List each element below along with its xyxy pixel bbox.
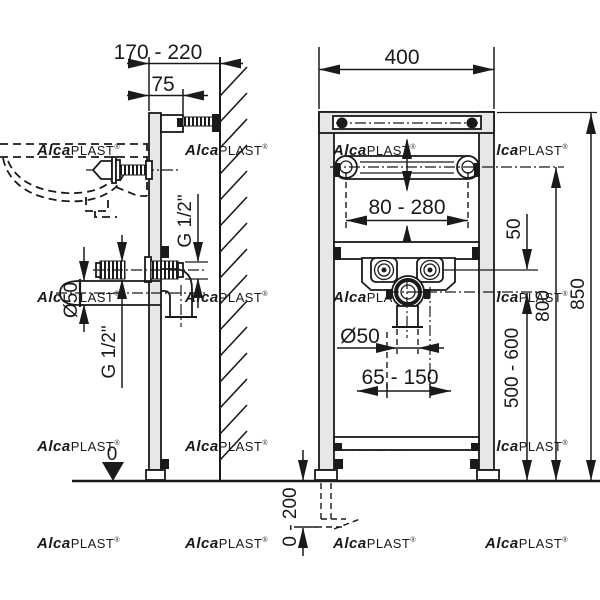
dim-fixing-bar-height-label: 800 (533, 290, 554, 322)
top-crossbar (319, 112, 494, 133)
dim-depth-range-label: 170 - 220 (114, 41, 203, 64)
installation-frame-drawing: AlcaPLAST®AlcaPLAST®AlcaPLAST®AlcaPLAST®… (0, 0, 600, 600)
pipe-clamp (161, 246, 169, 258)
dim-frame-height-label: 850 (568, 278, 589, 310)
brand-watermark: AlcaPLAST® (484, 535, 568, 552)
dim-supply-thread-upper-label: G 1/2" (175, 194, 196, 247)
brand-watermark: AlcaPLAST® (184, 142, 268, 159)
left-rail (319, 112, 334, 470)
dim-wall-offset-label: 75 (151, 73, 174, 96)
brand-watermark: AlcaPLAST® (36, 535, 120, 552)
dim-drain-height-range-label: 500 - 600 (502, 328, 523, 408)
anchor-bolt-left (337, 118, 348, 129)
dim-drain-diameter-front-label: Ø50 (340, 325, 380, 348)
frame-foot-side (146, 470, 165, 480)
drawing-canvas: AlcaPLAST®AlcaPLAST®AlcaPLAST®AlcaPLAST®… (0, 0, 600, 600)
brand-watermark: AlcaPLAST® (184, 535, 268, 552)
brand-watermark: AlcaPLAST® (332, 535, 416, 552)
dim-supply-thread-lower-label: G 1/2" (99, 325, 120, 378)
dim-frame-width-label: 400 (384, 46, 419, 69)
wall-anchor (212, 114, 220, 132)
supply-connection-right (417, 258, 443, 282)
dim-supply-drain-gap-label: 50 (504, 218, 525, 239)
foot-lock-knob-side (160, 459, 169, 469)
dim-drain-offset-range-label: 65 - 150 (361, 366, 438, 389)
bottom-crossbar (334, 437, 479, 451)
right-rail (479, 112, 494, 470)
dim-fixing-span-label: 80 - 280 (368, 196, 445, 219)
brand-watermark: AlcaPLAST® (484, 142, 568, 159)
dim-leg-adjustment-label: 0 - 200 (280, 487, 301, 546)
dim-drain-diameter-side-label: Ø50 (61, 282, 82, 318)
floor-zero-label: 0 (107, 444, 118, 465)
anchor-bolt-right (467, 118, 478, 129)
supply-connection-left (371, 258, 397, 282)
